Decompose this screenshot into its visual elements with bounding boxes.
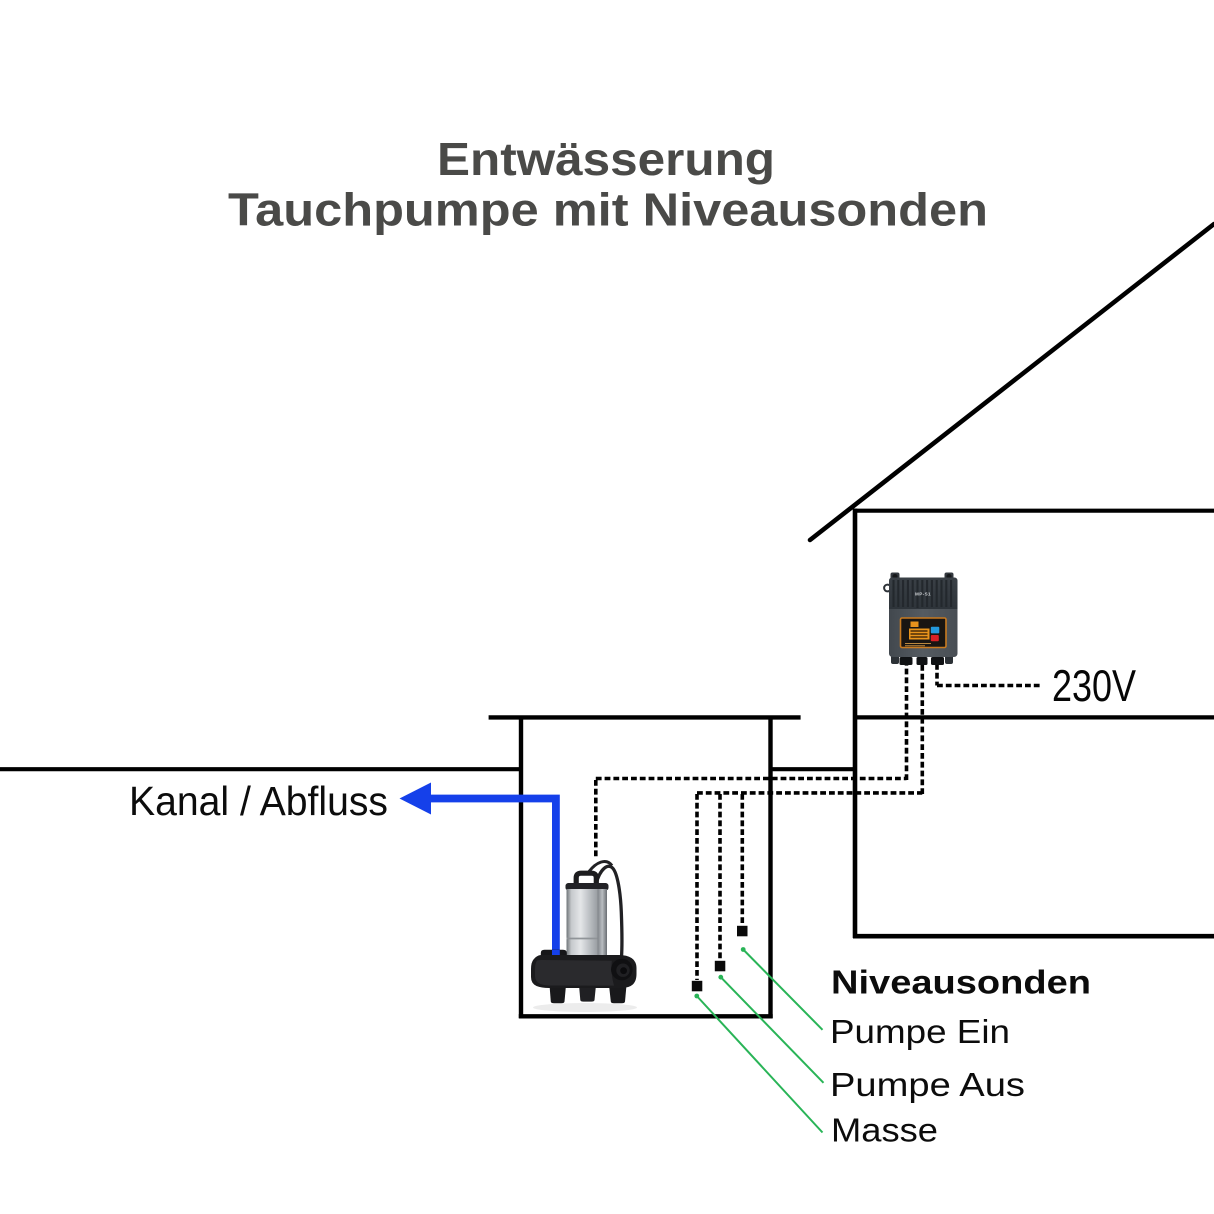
svg-text:Entwässerung: Entwässerung <box>437 133 775 185</box>
svg-text:Masse: Masse <box>831 1112 938 1149</box>
svg-text:MP-S1: MP-S1 <box>915 592 931 597</box>
svg-text:Niveausonden: Niveausonden <box>831 964 1091 1001</box>
svg-text:Kanal / Abfluss: Kanal / Abfluss <box>129 778 388 824</box>
svg-text:Pumpe Aus: Pumpe Aus <box>830 1066 1025 1103</box>
svg-text:230V: 230V <box>1052 662 1136 711</box>
svg-text:Pumpe Ein: Pumpe Ein <box>830 1013 1010 1050</box>
svg-text:Tauchpumpe mit Niveausonden: Tauchpumpe mit Niveausonden <box>228 184 988 236</box>
